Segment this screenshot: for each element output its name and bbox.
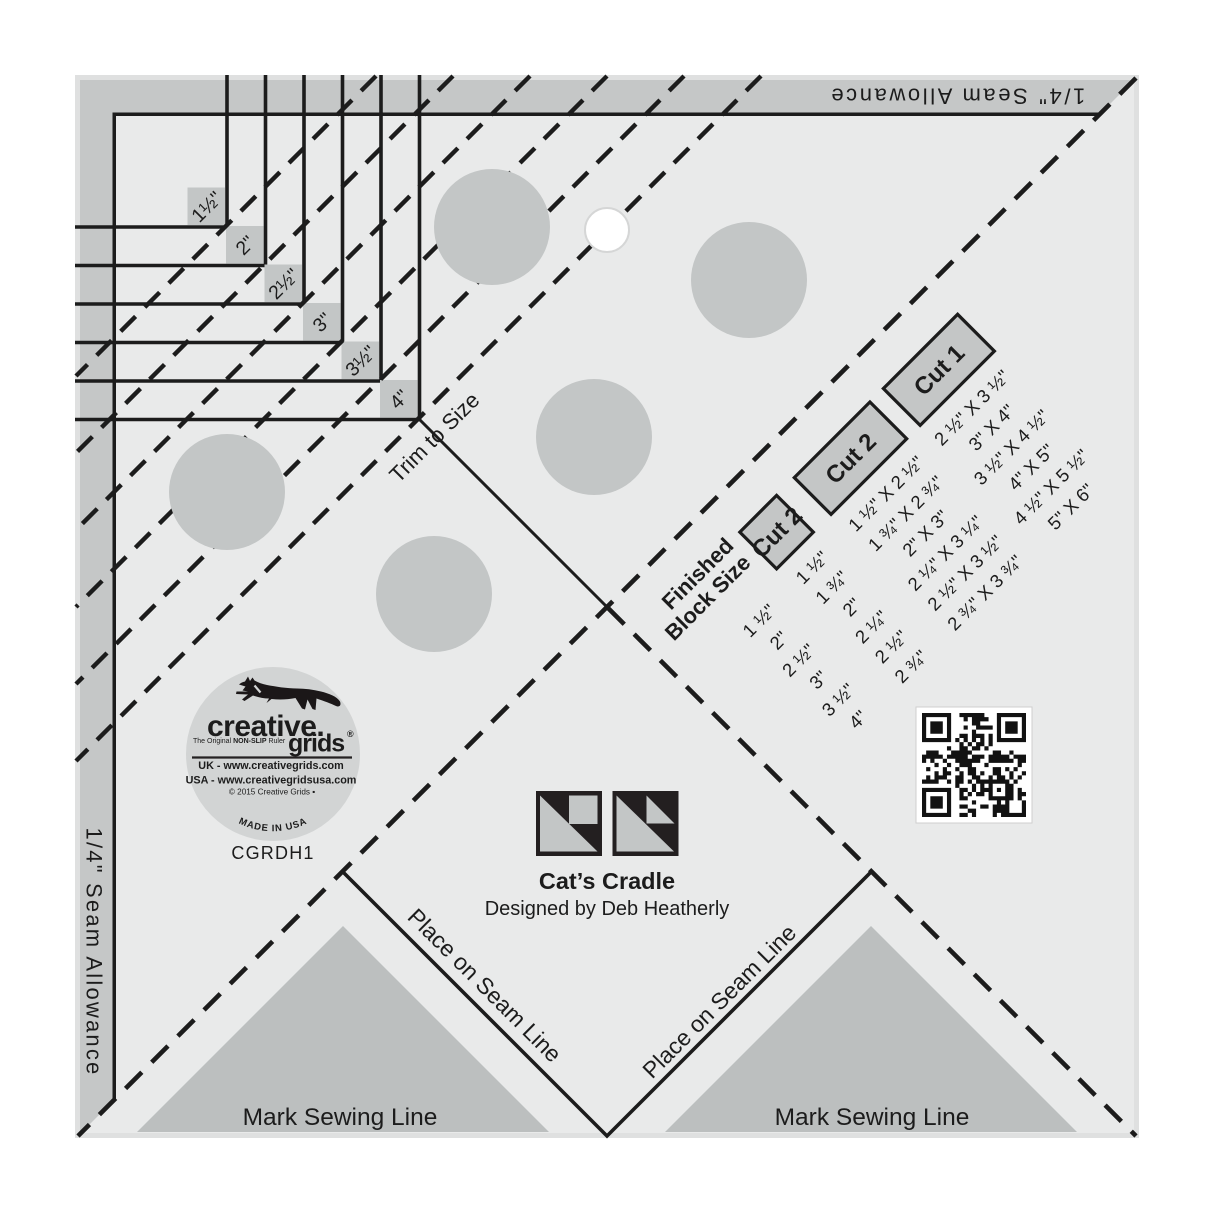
- svg-text:UK - www.creativegrids.com: UK - www.creativegrids.com: [198, 760, 343, 772]
- svg-text:Cat’s Cradle: Cat’s Cradle: [539, 868, 675, 894]
- svg-text:Mark Sewing Line: Mark Sewing Line: [243, 1104, 438, 1131]
- svg-text:© 2015 Creative Grids ▪: © 2015 Creative Grids ▪: [229, 788, 315, 797]
- svg-text:Designed by Deb Heatherly: Designed by Deb Heatherly: [485, 898, 730, 920]
- svg-text:The Original NON-SLIP Ruler: The Original NON-SLIP Ruler: [193, 738, 286, 745]
- svg-text:grids: grids: [288, 730, 344, 758]
- svg-text:1/4" Seam Allowance: 1/4" Seam Allowance: [829, 84, 1086, 109]
- svg-text:®: ®: [347, 729, 354, 739]
- svg-text:USA - www.creativegridsusa.com: USA - www.creativegridsusa.com: [186, 775, 357, 787]
- svg-text:Mark Sewing Line: Mark Sewing Line: [775, 1104, 970, 1131]
- svg-text:CGRDH1: CGRDH1: [231, 843, 314, 863]
- svg-text:1/4" Seam Allowance: 1/4" Seam Allowance: [82, 828, 107, 1077]
